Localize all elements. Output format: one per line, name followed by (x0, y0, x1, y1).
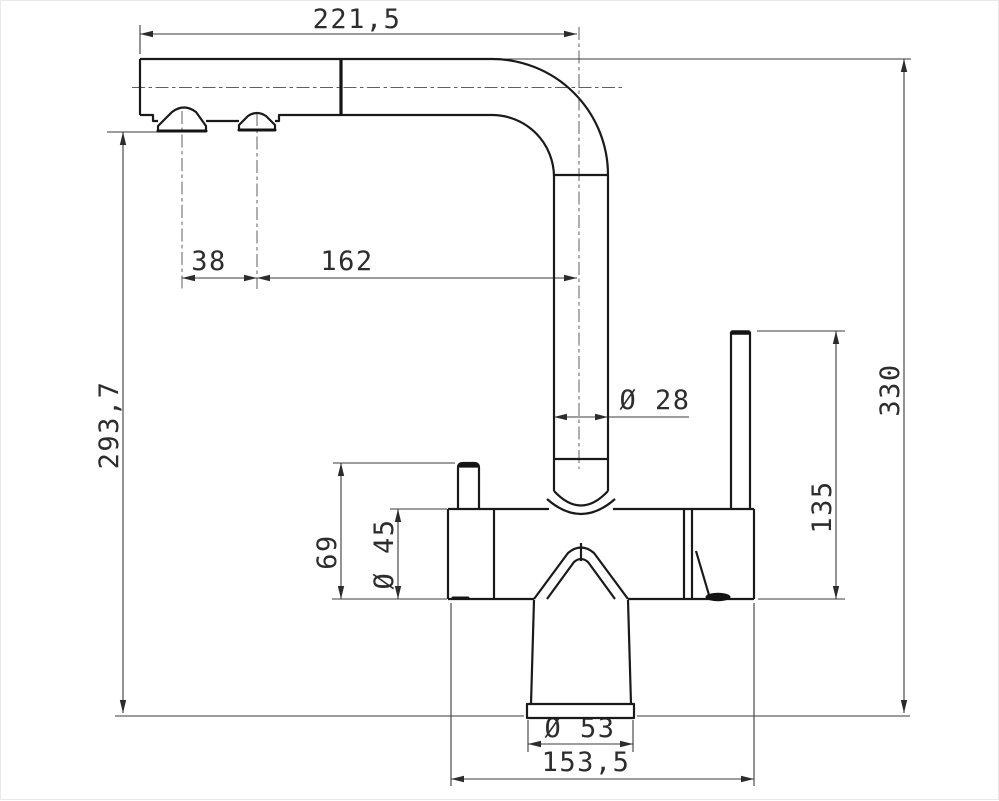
dim-label-spout-reach: 221,5 (313, 4, 402, 35)
base-column-and-flange (527, 600, 634, 718)
dim-lines (757, 331, 845, 599)
dim-spout-underside-height: 293,7 (94, 132, 159, 713)
riser-collar (547, 491, 615, 514)
diverter-knob (458, 463, 479, 509)
handle-pivot-shadow (706, 593, 731, 601)
dim-body-diameter: Ø 45 (369, 509, 447, 599)
dim-riser-diameter: Ø 28 (554, 385, 691, 420)
drawing-canvas: 221,5 38 162 293,7 Ø 28 Ø 45 69 135 (0, 0, 999, 800)
dim-body-length: 153,5 (451, 603, 754, 786)
dim-nozzle-spacing: 38 (182, 246, 257, 281)
dim-label-spout-underside-height: 293,7 (94, 381, 125, 470)
mixer-body-outline (448, 509, 754, 599)
dim-lever-height: 135 (757, 331, 845, 599)
thick-details (158, 61, 749, 599)
dim-label-nozzle-spacing: 38 (191, 246, 227, 277)
faucet-technical-drawing: 221,5 38 162 293,7 Ø 28 Ø 45 69 135 (1, 1, 999, 801)
dim-label-lever-height: 135 (807, 480, 838, 533)
dim-nozzle-to-riser: 162 (257, 246, 577, 281)
dim-overall-height: 330 (115, 59, 911, 716)
dim-lines (115, 59, 911, 716)
dim-label-riser-diameter: Ø 28 (619, 385, 690, 416)
dim-label-overall-height: 330 (875, 363, 906, 416)
dim-label-body-diameter: Ø 45 (369, 518, 400, 589)
dim-label-nozzle-to-riser: 162 (320, 246, 373, 277)
bottom-outlet-cone (534, 543, 628, 599)
dim-label-knob-height: 69 (312, 534, 343, 570)
dim-label-body-length: 153,5 (542, 747, 631, 778)
handle-lever (731, 332, 750, 510)
dim-spout-reach: 221,5 (140, 4, 577, 54)
